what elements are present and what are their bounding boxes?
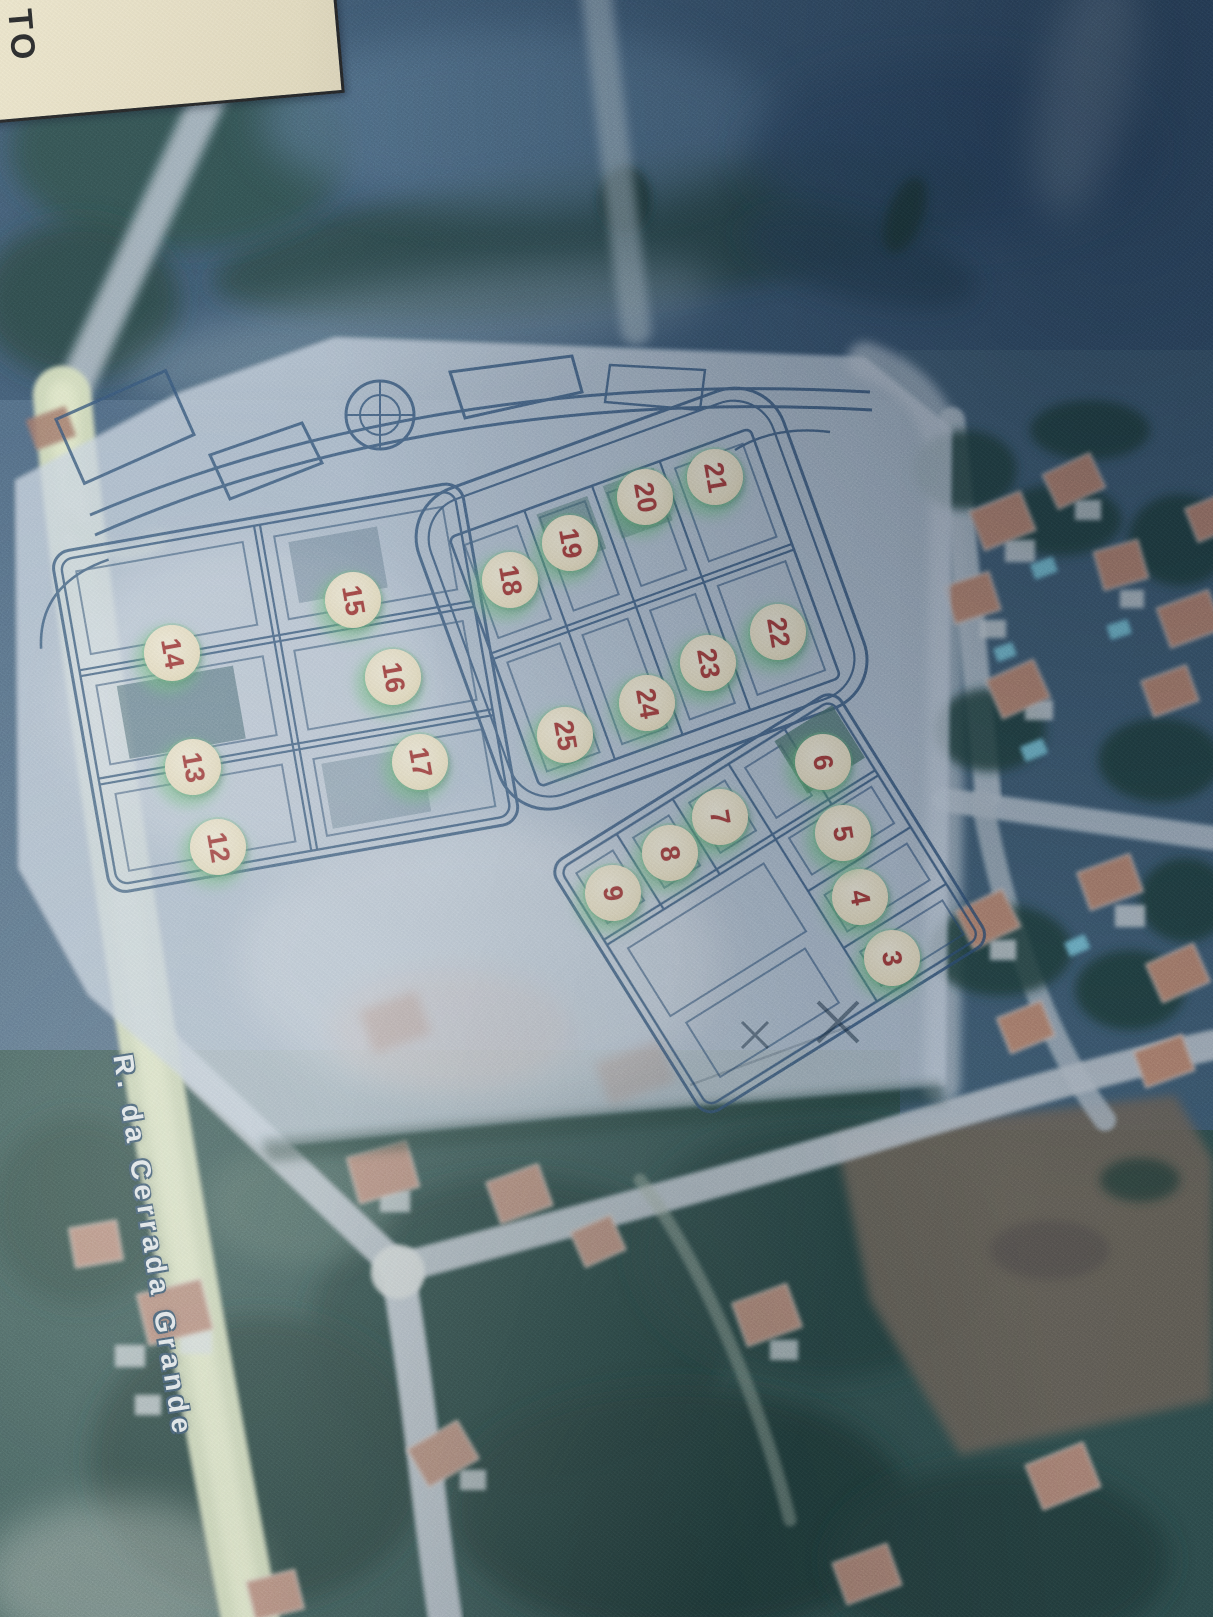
plot-marker-number: 15 xyxy=(337,583,369,617)
plot-marker-4: 4 xyxy=(832,869,888,925)
plot-marker-number: 12 xyxy=(202,830,234,864)
corner-title-fragment: TO xyxy=(0,7,43,65)
plot-marker-number: 25 xyxy=(549,718,581,752)
plot-marker-8: 8 xyxy=(642,825,698,881)
plot-marker-number: 21 xyxy=(699,460,731,494)
plot-marker-number: 7 xyxy=(705,807,734,826)
plot-marker-7: 7 xyxy=(692,789,748,845)
plot-marker-12: 12 xyxy=(190,819,246,875)
plot-marker-5: 5 xyxy=(815,805,871,861)
plot-marker-number: 16 xyxy=(377,660,409,694)
plot-marker-number: 13 xyxy=(177,750,209,784)
plot-marker-25: 25 xyxy=(537,707,593,763)
plot-marker-number: 17 xyxy=(404,745,436,779)
plot-marker-number: 4 xyxy=(845,887,874,906)
plot-marker-22: 22 xyxy=(750,604,806,660)
plot-marker-number: 22 xyxy=(762,615,794,649)
plot-marker-number: 24 xyxy=(631,686,663,720)
plot-marker-number: 14 xyxy=(156,636,188,670)
plot-marker-number: 3 xyxy=(877,948,906,967)
plot-marker-16: 16 xyxy=(365,649,421,705)
plot-marker-number: 23 xyxy=(692,646,724,680)
plot-marker-17: 17 xyxy=(392,734,448,790)
plot-marker-number: 8 xyxy=(655,843,684,862)
plot-marker-number: 9 xyxy=(598,883,627,902)
aerial-map-photo: 34567891213141516171819202122232425 R. d… xyxy=(0,0,1213,1617)
plot-marker-number: 20 xyxy=(629,480,661,514)
plot-marker-number: 19 xyxy=(554,526,586,560)
plot-marker-19: 19 xyxy=(542,515,598,571)
plot-marker-number: 18 xyxy=(494,563,526,597)
plot-marker-9: 9 xyxy=(585,865,641,921)
plot-marker-24: 24 xyxy=(619,675,675,731)
plot-marker-14: 14 xyxy=(144,625,200,681)
plot-marker-15: 15 xyxy=(325,572,381,628)
plot-marker-13: 13 xyxy=(165,739,221,795)
plot-marker-23: 23 xyxy=(680,635,736,691)
plot-marker-3: 3 xyxy=(864,930,920,986)
plot-marker-number: 6 xyxy=(808,752,837,771)
plot-marker-6: 6 xyxy=(795,734,851,790)
plot-marker-21: 21 xyxy=(687,449,743,505)
plot-marker-18: 18 xyxy=(482,552,538,608)
plot-marker-20: 20 xyxy=(617,469,673,525)
plot-marker-number: 5 xyxy=(828,823,857,842)
